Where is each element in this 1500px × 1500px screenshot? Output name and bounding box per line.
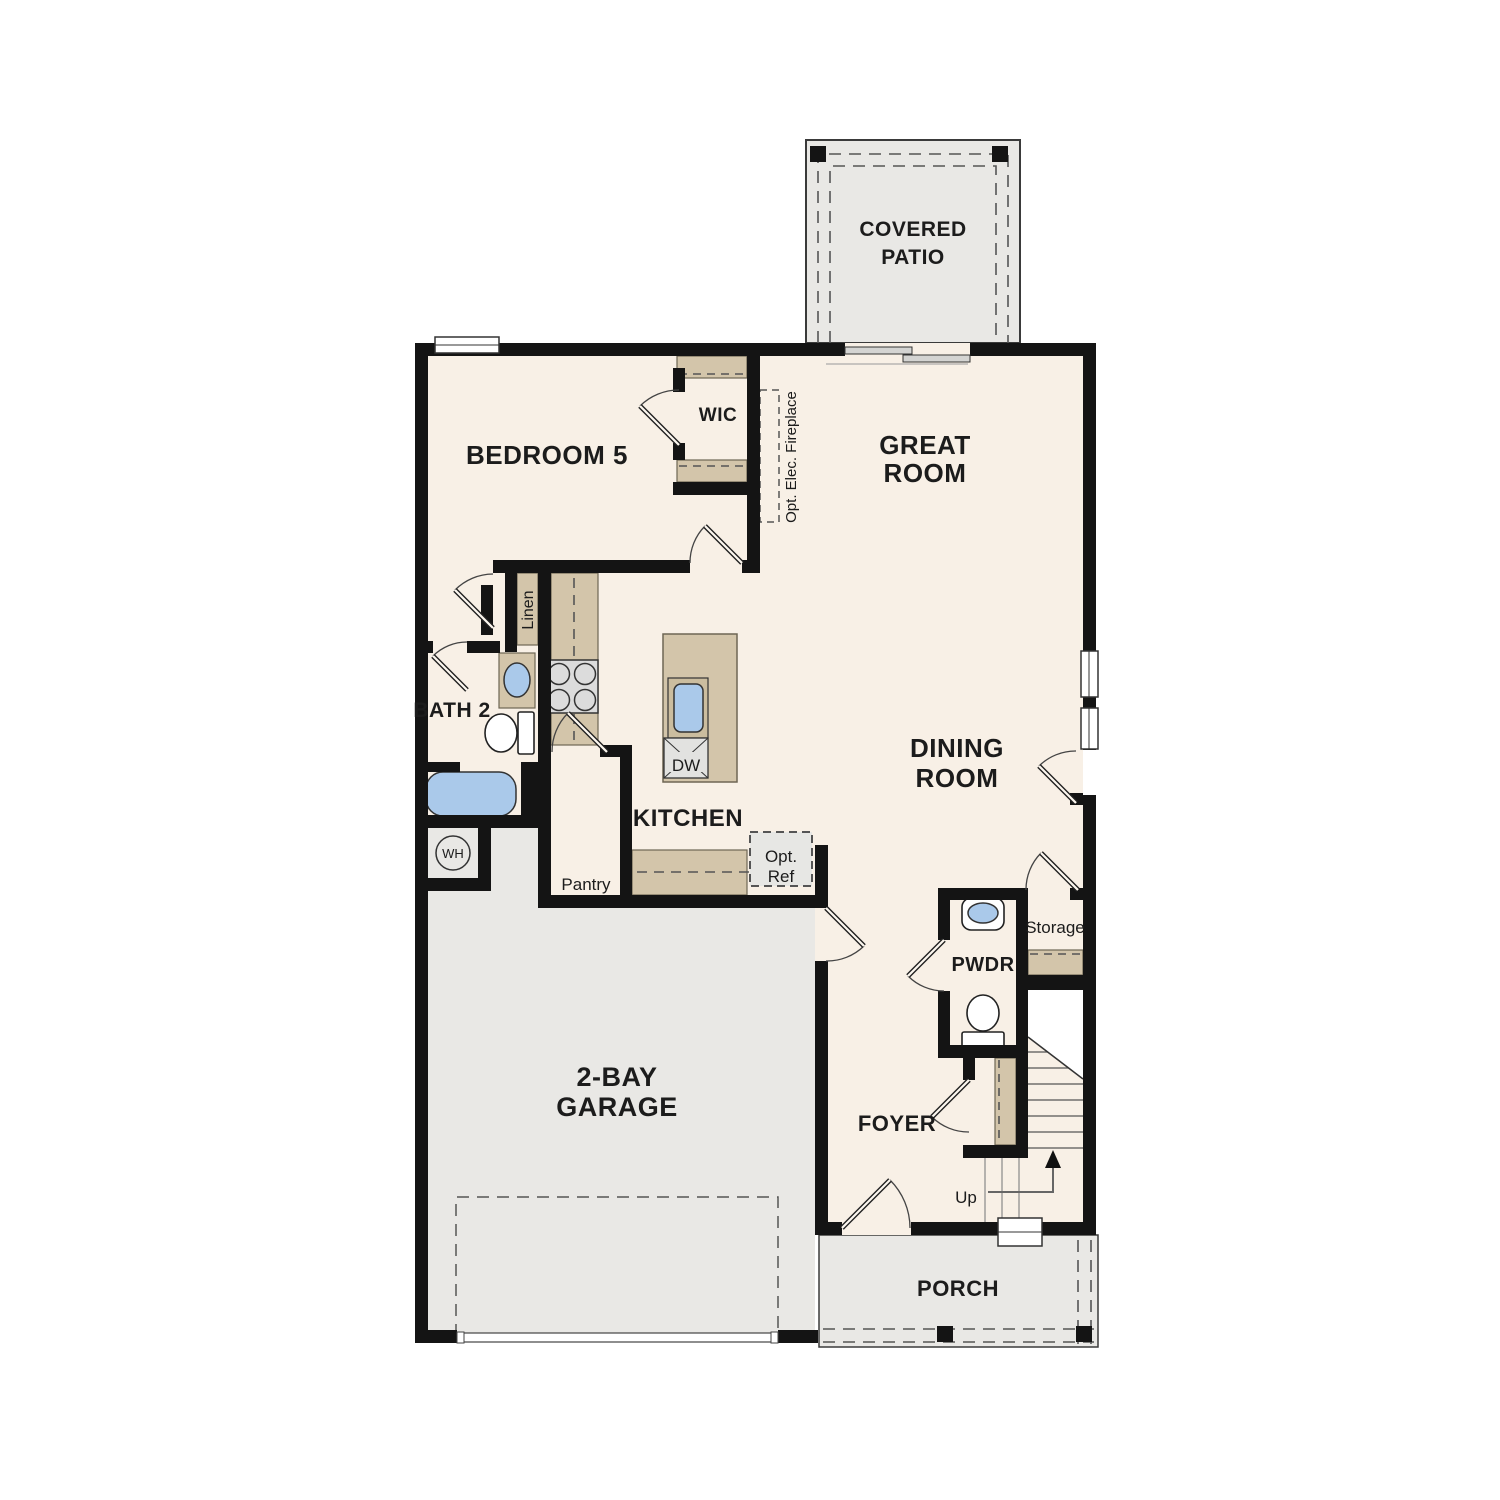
patio-post [810, 146, 826, 162]
wall-segment [415, 878, 491, 891]
wall-segment [538, 573, 551, 908]
bathtub [426, 772, 516, 816]
wall-segment [815, 961, 828, 1222]
wall-segment [415, 343, 428, 1343]
sliding-door-panel [845, 347, 912, 354]
bath2-toilet-tank [518, 712, 534, 754]
kitchen-label: KITCHEN [633, 805, 743, 832]
foyer-label: FOYER [858, 1111, 936, 1136]
great-room-label: GREAT [879, 430, 971, 460]
wall-segment [673, 368, 685, 392]
wic-shelf [677, 460, 747, 482]
wall-segment [540, 895, 826, 908]
sliding-door-panel [903, 355, 970, 362]
dishwasher-label: DW [672, 756, 700, 775]
wall-segment [415, 343, 1095, 356]
porch-post [1076, 1326, 1092, 1342]
wall-segment [467, 641, 500, 653]
water-heater-label: WH [442, 846, 464, 861]
wall-segment [815, 845, 828, 908]
dining-room-label: ROOM [916, 763, 999, 793]
wall-segment [673, 443, 685, 460]
floor-plan-page: COVERED PATIO BEDROOM 5 WIC GREAT ROOM O… [0, 0, 1500, 1500]
bath2-sink [504, 663, 530, 697]
opt-ref-label: Opt. [765, 847, 797, 866]
bedroom5-label: BEDROOM 5 [466, 440, 628, 470]
pwdr-toilet-bowl [967, 995, 999, 1031]
covered-patio-area [806, 140, 1020, 343]
fireplace-label: Opt. Elec. Fireplace [783, 391, 800, 523]
pantry-label: Pantry [561, 875, 611, 894]
wall-segment [1016, 975, 1096, 990]
wic-label: WIC [699, 405, 737, 426]
stove [546, 660, 598, 713]
wall-segment [620, 745, 632, 908]
wall-segment [493, 560, 690, 573]
garage-door-jamb [457, 1332, 464, 1343]
storage-label: Storage [1025, 918, 1085, 937]
wall-segment [938, 1045, 1028, 1058]
wall-segment [415, 815, 538, 828]
up-label: Up [955, 1188, 977, 1207]
wall-segment [963, 1145, 1028, 1158]
opt-ref-label: Ref [768, 867, 795, 886]
island-sink [674, 684, 703, 732]
wall-segment [747, 356, 760, 573]
linen-label: Linen [520, 590, 537, 629]
covered-patio-label: COVERED [859, 218, 966, 241]
wall-segment [415, 641, 433, 653]
dining-room-label: DINING [910, 733, 1004, 763]
pwdr-label: PWDR [951, 954, 1014, 976]
wall-segment [963, 1058, 975, 1080]
wall-segment [938, 888, 950, 940]
garage-door [457, 1333, 778, 1342]
wall-segment [521, 762, 538, 818]
porch-label: PORCH [917, 1276, 999, 1301]
wall-segment [505, 573, 517, 652]
bath2-label: BATH 2 [413, 699, 490, 722]
garage-label: 2-BAY [576, 1062, 657, 1092]
pwdr-sink [968, 903, 998, 923]
garage-door-jamb [771, 1332, 778, 1343]
wall-segment [938, 888, 1028, 900]
patio-post [992, 146, 1008, 162]
foyer-closet-shelf [995, 1058, 1016, 1145]
wall-segment [415, 762, 460, 772]
wall-segment [415, 1330, 457, 1343]
wall-segment [673, 482, 760, 495]
great-room-label: ROOM [884, 458, 967, 488]
garage-label: GARAGE [556, 1092, 678, 1122]
floor-plan-drawing: COVERED PATIO BEDROOM 5 WIC GREAT ROOM O… [0, 0, 1500, 1500]
wall-segment [778, 1330, 818, 1343]
covered-patio-label: PATIO [881, 246, 945, 269]
porch-post [937, 1326, 953, 1342]
